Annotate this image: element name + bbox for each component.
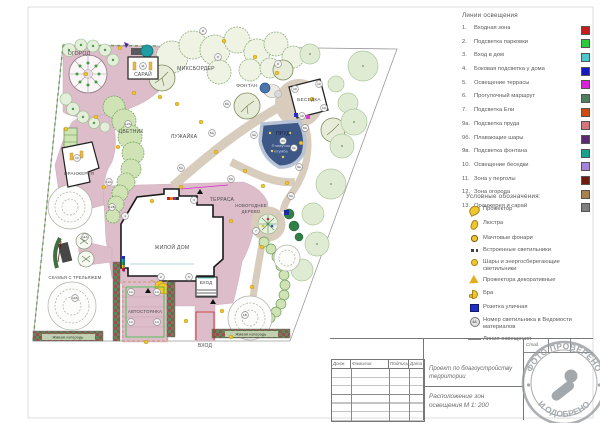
legend-symbol-item: Встроенные светильники <box>466 247 592 254</box>
fixture-marker-label: 8 <box>277 62 279 66</box>
legend-lighting-item: 7.Подсветка Ели <box>462 107 590 117</box>
fixture-marker: 1А <box>154 289 161 296</box>
legend-color-chip <box>581 80 590 89</box>
fixture-marker: 11Б <box>72 295 79 302</box>
plan-area-label: ЦВЕТНИК <box>119 129 144 135</box>
fixture-marker: 8А <box>224 101 231 108</box>
stamp-camera-icon <box>550 370 578 403</box>
stamp-text-bottom: И ОДОБРЕНО <box>536 399 592 419</box>
plan-area-label: БЕСЕДКА <box>297 97 321 103</box>
fixture-marker: 9в <box>291 145 298 152</box>
fixture-marker: 10 <box>316 81 323 88</box>
fixture-marker: 7 <box>253 228 260 235</box>
sconce-icon <box>466 290 483 299</box>
legend-lighting-item: 9а.Подсветка пруда <box>462 121 590 131</box>
fixture-marker-label: 1Б <box>243 313 247 317</box>
legend-symbol-item: Бра <box>466 290 592 299</box>
lamp-dot <box>299 141 303 145</box>
fixture-marker-label: 2 <box>160 275 162 279</box>
legend-symbol-item: Розетка уличная <box>466 304 592 312</box>
legend-symbol-label: Встроенные светильники <box>483 247 592 254</box>
plan-area-label: АВТОСТОЯНКА <box>128 309 162 314</box>
legend-symbol-label: Люстра <box>483 220 592 227</box>
fixture-marker-label: 1А <box>155 290 159 294</box>
legend-lighting-item: 10.Освещение беседки <box>462 162 590 172</box>
legend-item-label: Боковая подсветка у дома <box>474 66 581 72</box>
signature-table: Долж. Фамилия Подпись Дата <box>331 359 425 422</box>
lamp-dot <box>199 120 203 124</box>
plan-area-label: НОВОГОДНЕЕ <box>235 203 267 208</box>
legend-color-chip <box>581 53 590 62</box>
col-position: Долж. <box>332 360 351 368</box>
legend-symbol-label: Бра <box>483 290 592 297</box>
outlet-icon <box>466 304 483 312</box>
plan-area-label: МИКСБОРДЕР <box>177 66 215 72</box>
plan-area-label: САРАЙ <box>134 70 152 78</box>
fixture-marker: 8А <box>302 125 309 132</box>
legend-item-number: 11. <box>462 176 474 182</box>
lamp-dot <box>116 145 120 149</box>
legend-symbol-label: Прожектора декоративные <box>483 277 592 284</box>
fixture-marker-label: 9б <box>281 139 285 143</box>
legend-item-number: 10. <box>462 162 474 168</box>
legend-symbol-item: Шары и энергосберегающие светильники <box>466 259 592 272</box>
fixture-marker-label: 10 <box>322 106 326 110</box>
fixture-marker-label: 9а <box>297 165 301 169</box>
fixture-marker: 1Б <box>242 312 249 319</box>
chandelier-icon <box>466 220 483 230</box>
legend-item-number: 3. <box>462 52 474 58</box>
legend-item-number: 5. <box>462 80 474 86</box>
fixture-marker: 1А <box>154 319 161 326</box>
fixture-marker: 1А <box>128 319 135 326</box>
fixture-marker-label: 7 <box>255 229 257 233</box>
house-top-strip <box>167 197 179 200</box>
lamp-dot <box>144 340 148 344</box>
plan-area-label: СКАМЬЯ С ТРЕЛЬЯЖЕМ <box>49 275 102 280</box>
legend-item-label: Освещение террасы <box>474 80 581 86</box>
legend-symbols-title: Условные обозначения: <box>466 193 592 200</box>
fixture-marker: 9а <box>251 132 258 139</box>
fixture-marker-label: 10 <box>300 114 304 118</box>
lamp-dot <box>64 127 68 131</box>
fixture-marker-label: 6А <box>229 177 233 181</box>
legend-item-label: Входная зона <box>474 25 581 31</box>
lamp-dot <box>220 309 224 313</box>
fixture-marker: 12Б <box>109 204 116 211</box>
legend-color-chip <box>581 67 590 76</box>
fixture-marker: 5А <box>178 165 185 172</box>
fixture-marker-label: 6А <box>289 194 293 198</box>
fixture-marker-label: 3 <box>193 198 195 202</box>
fixture-marker-label: 11Б <box>72 296 78 300</box>
fixture-marker: 2 <box>158 274 165 281</box>
fixture-marker-label: 11А <box>82 235 88 239</box>
plan-area-label: Плавучая <box>272 144 291 148</box>
plan-area-label: ВХОД <box>198 343 213 349</box>
legend-item-label: Зона у перголы <box>474 176 581 182</box>
deco-icon <box>466 277 483 285</box>
legend-color-chip <box>581 39 590 48</box>
lamp-dot <box>132 91 136 95</box>
legend-item-label: Подсветка пруда <box>474 121 581 127</box>
recessed-icon <box>466 247 483 254</box>
legend-symbols-items: ПрожекторЛюстраМачтовые фонариВстроенные… <box>466 206 592 343</box>
fixture-marker: 6А <box>228 176 235 183</box>
legend-lighting-item: 6.Прогулочный маршрут <box>462 93 590 103</box>
fixture-marker-label: 8А <box>225 102 229 106</box>
legend-color-chip <box>581 135 590 144</box>
fixture-marker: 12А <box>125 121 132 128</box>
legend-symbol-item: Люстра <box>466 220 592 230</box>
fixture-marker: 5 <box>186 274 193 281</box>
legend-item-number: 6. <box>462 93 474 99</box>
project-title: Проект по благоустройству территории <box>429 366 512 382</box>
lamp-dot <box>275 71 279 75</box>
legend-lighting-item: 9в.Подсветка фонтана <box>462 148 590 158</box>
badge-icon: 4А <box>466 317 483 327</box>
fixture-marker-label: 12А <box>106 180 112 184</box>
legend-lighting-item: 9б.Плавающие шары <box>462 135 590 145</box>
plan-area-label: ВХОД <box>200 280 213 285</box>
fixture-marker: 13 <box>74 155 81 162</box>
plan-area-label: Живая изгородь <box>52 336 83 340</box>
signature-table-header: Долж. Фамилия Подпись Дата <box>332 360 424 369</box>
fixture-marker-label: 10 <box>317 82 321 86</box>
plan-area-label: ЛУЖАЙКА <box>171 132 198 140</box>
fixture-marker-label: 5 <box>188 275 190 279</box>
legend-lighting-item: 3.Вход в дом <box>462 52 590 62</box>
legend-item-number: 4. <box>462 66 474 72</box>
fixture-marker-label: 1А <box>155 320 159 324</box>
fixture-marker: 8 <box>215 54 222 61</box>
fixture-marker: 9а <box>296 164 303 171</box>
floodlight-icon <box>466 206 483 215</box>
legend-color-chip <box>581 149 590 158</box>
lamp-dot <box>158 95 162 99</box>
legend-symbol-item: Мачтовые фонари <box>466 235 592 242</box>
lamp-dot <box>243 169 247 173</box>
fixture-marker-label: 8 <box>217 55 219 59</box>
legend-symbol-label: Розетка уличная <box>483 304 592 311</box>
fixture-marker: 8 <box>275 61 282 68</box>
fixture-marker-label: 12А <box>125 122 131 126</box>
legend-symbol-item: Прожектора декоративные <box>466 277 592 285</box>
lamp-dot <box>179 185 183 189</box>
plan-area-label: ОРАНЖЕРЕЯ <box>64 171 94 176</box>
legend-lighting-item: 11.Зона у перголы <box>462 176 590 186</box>
legend-lighting-items: 1.Входная зона2.Подсветка парковки3.Вход… <box>462 25 590 212</box>
mast-icon <box>466 235 483 242</box>
svg-text:И ОДОБРЕНО: И ОДОБРЕНО <box>536 399 592 419</box>
fixture-marker: 1А <box>128 289 135 296</box>
col-name: Фамилия <box>351 360 389 368</box>
plan-area-label: ПРУД <box>276 131 290 137</box>
legend-item-label: Плавающие шары <box>474 135 581 141</box>
legend-symbol-label: Номер светильника в Ведомости материалов <box>483 317 592 330</box>
legend-item-number: 2. <box>462 39 474 45</box>
lamp-dot <box>94 115 98 119</box>
lamp-dot <box>118 46 122 50</box>
lamp-dot <box>175 102 179 106</box>
legend-symbol-label: Мачтовые фонари <box>483 235 592 242</box>
col-signature: Подпись <box>389 360 409 368</box>
fixture-marker: 6А <box>288 193 295 200</box>
fixture-marker-label: 10 <box>293 87 297 91</box>
legend-item-number: 9б. <box>462 135 474 141</box>
fixture-marker: 11А <box>82 234 89 241</box>
fixture-marker: 8 <box>200 28 207 35</box>
legend-item-label: Подсветка фонтана <box>474 148 581 154</box>
signature-table-rows <box>332 369 424 421</box>
legend-item-label: Прогулочный маршрут <box>474 93 581 99</box>
legend-item-number: 9в. <box>462 148 474 154</box>
fixture-marker-label: 1А <box>129 290 133 294</box>
plan-area-label: ОГОРОД <box>68 51 91 57</box>
shed-tree <box>141 45 153 57</box>
legend-lighting-title: Линии освещения <box>462 12 590 19</box>
fixture-marker-label: 4 <box>124 214 126 218</box>
col-date: Дата <box>409 360 422 368</box>
lamp-dot <box>84 72 88 76</box>
lamp-dot <box>229 335 233 339</box>
fixture-marker-label: 11 <box>141 64 145 68</box>
lamp-dot <box>184 319 188 323</box>
fixture-marker-label: 12Б <box>109 205 115 209</box>
lamp-dot <box>253 55 257 59</box>
fixture-marker-label: 9а <box>252 133 256 137</box>
lamp-dot <box>102 185 106 189</box>
legend-item-number: 9а. <box>462 121 474 127</box>
fixture-marker-label: 5А <box>179 166 183 170</box>
lamp-dot <box>214 150 218 154</box>
fixture-marker: 3 <box>191 197 198 204</box>
plan-area-label: ФОНТАН <box>236 83 258 89</box>
legend-symbol-item: Прожектор <box>466 206 592 215</box>
legend-color-chip <box>581 121 590 130</box>
legend-color-chip <box>581 26 590 35</box>
legend-item-label: Вход в дом <box>474 52 581 58</box>
legend-symbol-item: 4АНомер светильника в Ведомости материал… <box>466 317 592 330</box>
legend-lighting-item: 4.Боковая подсветка у дома <box>462 66 590 76</box>
fixture-marker: 4 <box>122 213 129 220</box>
legend-lighting-lines: Линии освещения 1.Входная зона2.Подсветк… <box>462 12 590 217</box>
legend-item-number: 7. <box>462 107 474 113</box>
fixture-marker-label: 5А <box>210 131 214 135</box>
fixture-marker: 12А <box>106 179 113 186</box>
plan-area-label: ДЕРЕВО <box>242 209 261 214</box>
plan-area-label: ТЕРРАСА <box>210 197 235 203</box>
plan-area-label: ЖИЛОЙ ДОМ <box>155 243 190 251</box>
lamp-dot <box>222 39 226 43</box>
lamp-dot <box>261 184 265 188</box>
fixture-marker: 10 <box>299 113 306 120</box>
legend-symbol-label: Прожектор <box>483 206 592 213</box>
plan-area-label: Живая изгородь <box>235 333 266 337</box>
lamp-dot <box>250 285 254 289</box>
legend-color-chip <box>581 176 590 185</box>
fixture-marker: 5А <box>209 130 216 137</box>
lamp-dot <box>150 199 154 203</box>
legend-item-label: Подсветка Ели <box>474 107 581 113</box>
drawing-title: Расположение зон освещения М 1: 200 <box>429 392 489 411</box>
fixture-marker-label: 9в <box>292 146 296 150</box>
stamp-text-top: ФОТО ПРОВЕРЕНО <box>524 341 600 373</box>
legend-lighting-item: 1.Входная зона <box>462 25 590 35</box>
legend-color-chip <box>581 108 590 117</box>
legend-item-number: 1. <box>462 25 474 31</box>
approval-stamp: ФОТО ПРОВЕРЕНО И ОДОБРЕНО <box>508 336 600 423</box>
lamp-dot <box>229 219 233 223</box>
legend-lighting-item: 2.Подсветка парковки <box>462 39 590 49</box>
plan-area-label: клумба <box>274 150 288 154</box>
legend-symbols: Условные обозначения: ПрожекторЛюстраМач… <box>466 193 592 348</box>
ball-icon <box>466 259 483 266</box>
legend-lighting-item: 5.Освещение террасы <box>462 80 590 90</box>
svg-text:ФОТО ПРОВЕРЕНО: ФОТО ПРОВЕРЕНО <box>524 341 600 373</box>
fixture-marker: 10 <box>292 86 299 93</box>
fixture-marker-label: 1А <box>129 320 133 324</box>
fixture-marker-label: 8А <box>303 126 307 130</box>
fixture-marker: 10 <box>321 105 328 112</box>
fixture-marker-label: 8 <box>202 29 204 33</box>
legend-symbol-label: Шары и энергосберегающие светильники <box>483 259 592 272</box>
fixture-marker-label: 13 <box>75 156 79 160</box>
legend-item-label: Освещение беседки <box>474 162 581 168</box>
legend-color-chip <box>581 162 590 171</box>
drawing-sheet: 8881112А12А12Б1311А11Б42535А5А6А6А9а9а9б… <box>0 0 600 423</box>
fixture-marker: 11 <box>140 63 147 70</box>
legend-color-chip <box>581 94 590 103</box>
legend-item-label: Подсветка парковки <box>474 39 581 45</box>
lamp-dot <box>285 181 289 185</box>
lamp-dot <box>260 245 264 249</box>
house-left-strip <box>122 256 125 271</box>
